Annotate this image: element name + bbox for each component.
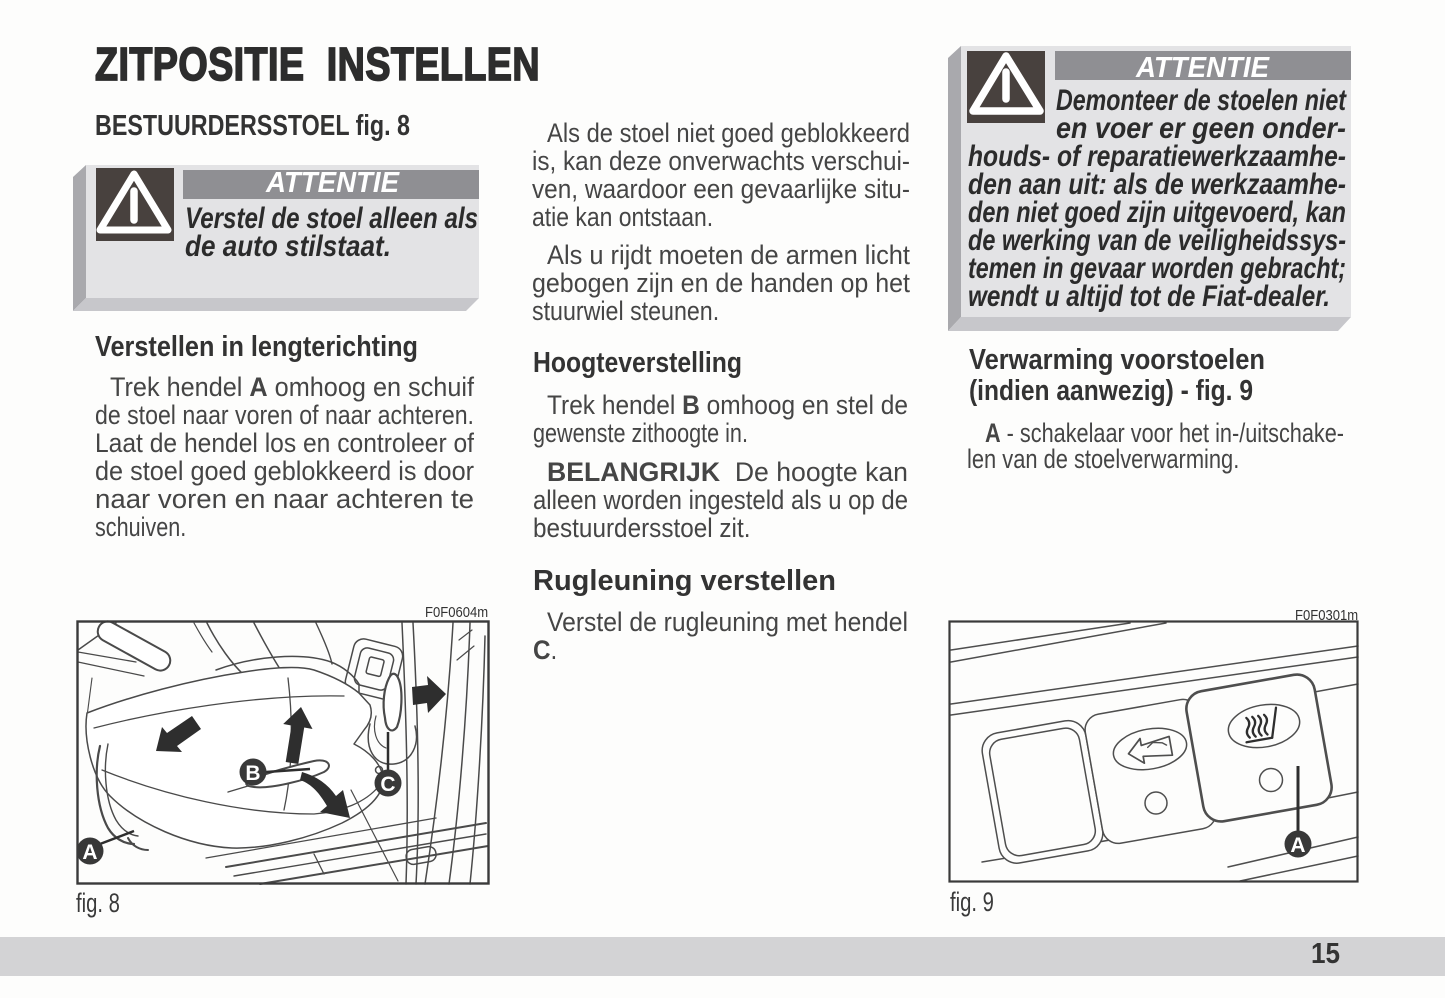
svg-text:A: A bbox=[1290, 834, 1305, 857]
svg-text:C: C bbox=[380, 773, 395, 796]
svg-text:A: A bbox=[82, 841, 97, 864]
svg-text:B: B bbox=[245, 762, 260, 785]
